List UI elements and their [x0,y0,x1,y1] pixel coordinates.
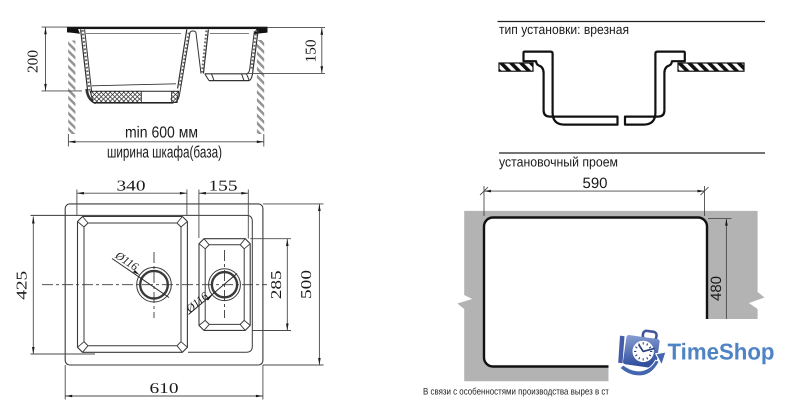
svg-text:340: 340 [117,179,146,195]
svg-text:ширина шкафа(база): ширина шкафа(база) [107,144,222,162]
svg-text:500: 500 [299,270,315,299]
svg-text:min 600 мм: min 600 мм [125,125,198,142]
svg-text:TimeShop: TimeShop [668,339,775,365]
svg-text:установочный проем: установочный проем [499,155,618,170]
svg-text:тип установки: врезная: тип установки: врезная [499,22,629,37]
svg-text:285: 285 [269,270,285,299]
svg-text:425: 425 [15,271,31,300]
svg-text:200: 200 [26,50,42,73]
svg-text:В связи с особенностями произв: В связи с особенностями производства выр… [423,386,610,397]
svg-text:150: 150 [304,40,320,63]
svg-text:155: 155 [209,179,238,195]
svg-text:480: 480 [708,276,725,301]
svg-text:Ø116: Ø116 [112,249,140,273]
svg-text:610: 610 [150,381,179,397]
svg-text:590: 590 [582,175,607,192]
